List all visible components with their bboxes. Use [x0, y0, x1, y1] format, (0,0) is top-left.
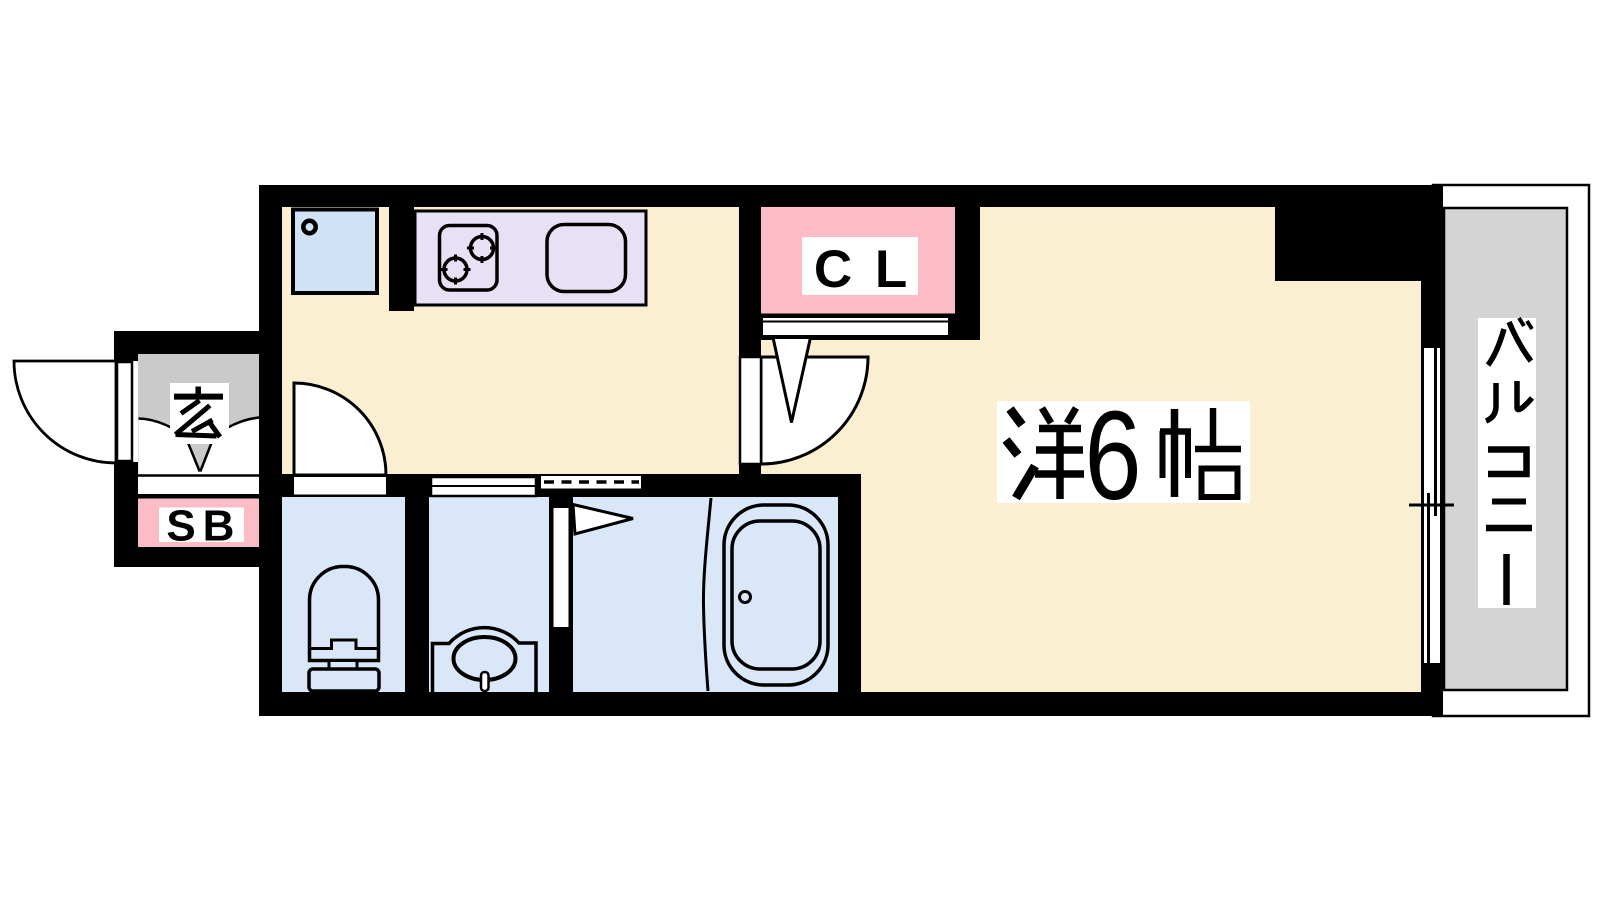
svg-text:6: 6	[1085, 385, 1142, 526]
svg-text:C: C	[814, 240, 852, 299]
svg-text:S: S	[166, 502, 195, 551]
svg-text:B: B	[203, 502, 235, 551]
svg-text:L: L	[875, 240, 907, 299]
